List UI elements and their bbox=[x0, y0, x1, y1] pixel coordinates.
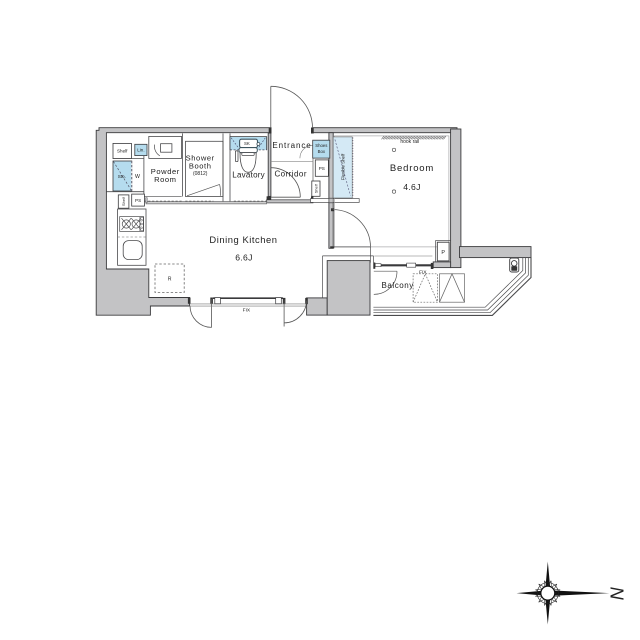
svg-text:Lin.: Lin. bbox=[137, 148, 144, 153]
svg-text:Corridor: Corridor bbox=[274, 170, 307, 179]
svg-text:(0812): (0812) bbox=[193, 171, 208, 177]
svg-text:hook rail: hook rail bbox=[400, 139, 419, 145]
svg-text:Flexible Shelf: Flexible Shelf bbox=[341, 153, 346, 180]
svg-text:Box: Box bbox=[318, 149, 326, 154]
svg-text:Dining Kitchen: Dining Kitchen bbox=[209, 234, 277, 245]
svg-text:PS: PS bbox=[135, 198, 141, 203]
svg-text:Shelf: Shelf bbox=[117, 149, 128, 154]
svg-text:Balcony: Balcony bbox=[382, 281, 414, 290]
svg-text:Shelf: Shelf bbox=[313, 183, 318, 193]
svg-text:Entrance: Entrance bbox=[272, 141, 311, 150]
svg-text:SK: SK bbox=[244, 141, 250, 146]
svg-text:W: W bbox=[135, 174, 140, 180]
svg-text:FIX: FIX bbox=[419, 269, 427, 275]
svg-text:R: R bbox=[168, 276, 172, 282]
svg-text:P: P bbox=[441, 250, 445, 256]
svg-text:FIX: FIX bbox=[243, 307, 251, 313]
svg-text:6.6J: 6.6J bbox=[235, 253, 252, 263]
svg-text:Bedroom: Bedroom bbox=[390, 163, 434, 174]
svg-text:Sto.: Sto. bbox=[118, 174, 126, 179]
svg-text:Booth: Booth bbox=[189, 161, 212, 170]
svg-text:4.6J: 4.6J bbox=[403, 182, 420, 192]
svg-text:Shoes: Shoes bbox=[315, 143, 327, 148]
svg-text:Shelf: Shelf bbox=[121, 196, 126, 206]
svg-text:Lavatory: Lavatory bbox=[232, 170, 265, 179]
svg-text:PS: PS bbox=[319, 166, 325, 171]
svg-text:Room: Room bbox=[154, 175, 176, 184]
svg-text:N: N bbox=[607, 587, 627, 601]
